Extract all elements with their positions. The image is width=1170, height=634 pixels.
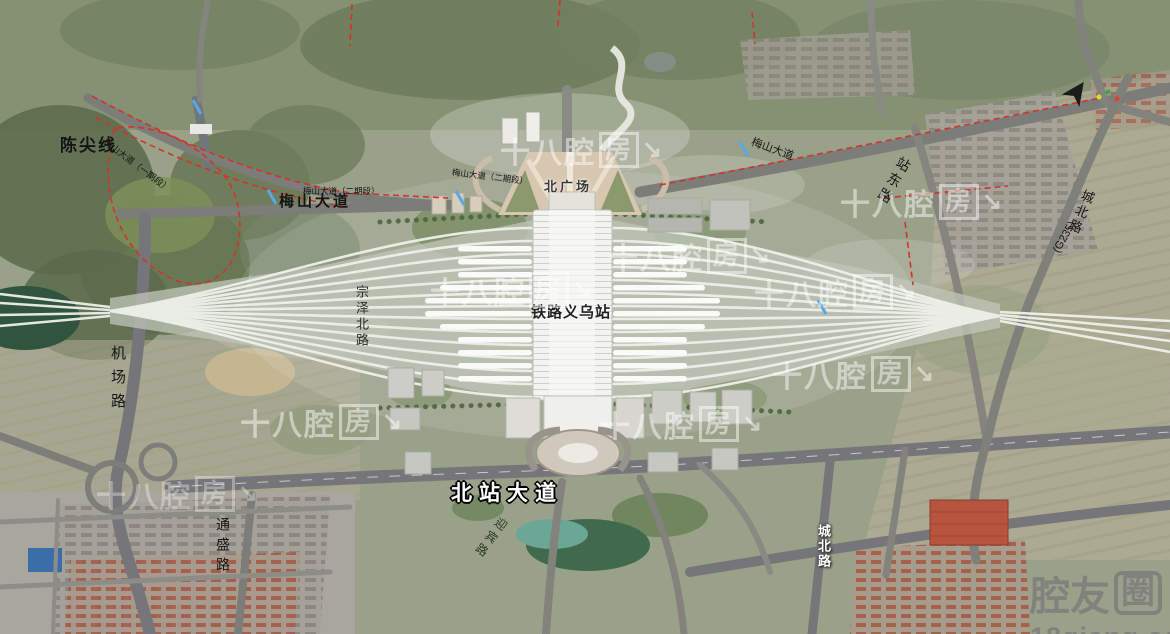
watermark-arrow-icon: ↘ [642,138,664,162]
watermark-footer: 腔友 圈 18qiang.com [1030,564,1170,634]
label-meishan-phase2-small: 梅山大道（二期段） [303,185,380,197]
watermark-brand: 十八腔 房 ↘ [608,234,772,278]
watermark-text: 十八腔 [430,268,526,312]
label-tongsheng-road: 通盛路 [213,517,233,577]
watermark-box-glyph: 房 [853,274,893,309]
watermark-box-glyph: 房 [939,184,979,219]
label-chengbei-road-south: 城北路 [814,524,833,569]
watermark-arrow-icon: ↘ [572,278,594,302]
watermark-box-glyph: 房 [707,238,747,273]
watermark-text: 十八腔 [96,472,192,516]
watermark-box-glyph: 房 [529,272,569,307]
watermark-brand: 十八腔 房 ↘ [240,400,404,444]
watermark-box-glyph: 房 [699,406,739,441]
watermark-text: 十八腔 [772,352,868,396]
watermark-box-glyph: 房 [195,476,235,511]
label-zongze-north-road: 宗泽北路 [352,285,371,349]
label-north-plaza: 北广场 [544,176,592,195]
watermark-brand: 十八腔 房 ↘ [772,352,936,396]
watermark-text: 十八腔 [240,400,336,444]
watermark-brand: 十八腔 房 ↘ [840,180,1004,224]
satellite-plan-map: 陈尖线 梅山大道（一期段） 梅山大道 梅山大道（二期段） 梅山大道（二期段） 梅… [0,0,1170,634]
watermark-box-glyph: 房 [599,132,639,167]
watermark-box-glyph: 房 [871,356,911,391]
watermark-brand: 十八腔 房 ↘ [500,128,664,172]
watermark-brand: 十八腔 房 ↘ [600,402,764,446]
watermark-arrow-icon: ↘ [742,412,764,436]
label-airport-road: 机场路 [107,345,128,417]
watermark-footer-box-glyph: 圈 [1114,571,1162,615]
watermark-brand: 十八腔 房 ↘ [96,472,260,516]
watermark-text: 十八腔 [500,128,596,172]
watermark-footer-site: 18qiang.com [1030,622,1170,634]
watermark-brand: 十八腔 房 ↘ [754,270,918,314]
watermark-arrow-icon: ↘ [914,362,936,386]
watermark-text: 十八腔 [600,402,696,446]
watermark-footer-text: 腔友 [1030,564,1110,622]
watermark-arrow-icon: ↘ [750,244,772,268]
watermark-arrow-icon: ↘ [238,482,260,506]
watermark-text: 十八腔 [608,234,704,278]
watermark-brand: 十八腔 房 ↘ [430,268,594,312]
watermark-arrow-icon: ↘ [382,410,404,434]
watermark-box-glyph: 房 [339,404,379,439]
watermark-text: 十八腔 [754,270,850,314]
label-north-station-avenue: 北站大道 [451,477,563,507]
watermark-arrow-icon: ↘ [896,280,918,304]
watermark-text: 十八腔 [840,180,936,224]
watermark-arrow-icon: ↘ [982,190,1004,214]
red-roof-building [930,500,1008,545]
